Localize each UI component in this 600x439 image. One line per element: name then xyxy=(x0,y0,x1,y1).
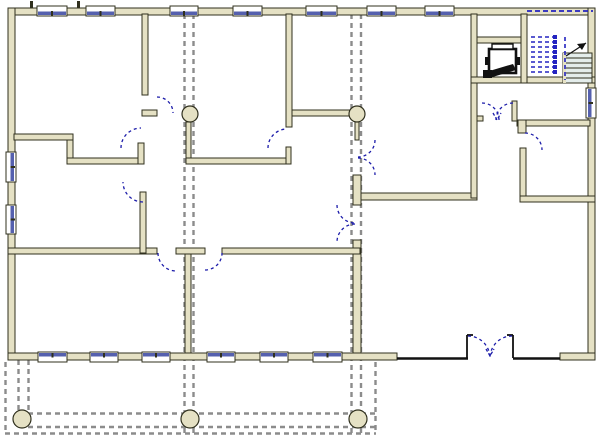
wall xyxy=(353,240,361,353)
window-mullion xyxy=(183,11,185,16)
wall xyxy=(186,158,291,164)
wall xyxy=(520,196,595,202)
wall xyxy=(138,143,144,164)
wall xyxy=(560,353,595,360)
wall xyxy=(477,116,483,121)
wall xyxy=(286,14,292,127)
elevator-guide-bracket xyxy=(516,57,520,65)
wall xyxy=(292,110,350,116)
wall xyxy=(520,148,526,202)
window-mullion xyxy=(103,353,105,358)
stair-up-marker xyxy=(553,50,557,54)
stair-up-marker xyxy=(553,45,557,49)
elevator-rail-bar xyxy=(492,44,513,49)
window-mullion xyxy=(273,353,275,358)
grid-tick xyxy=(30,1,33,8)
door-swing xyxy=(525,133,542,150)
wall xyxy=(521,14,527,83)
window-mullion xyxy=(589,102,594,104)
column xyxy=(182,106,198,122)
window-mullion xyxy=(100,11,102,16)
window-mullion xyxy=(11,166,16,168)
column xyxy=(349,410,367,428)
wall xyxy=(517,120,590,126)
door-swing xyxy=(205,253,222,270)
window-mullion xyxy=(155,353,157,358)
wall xyxy=(477,37,527,43)
stair-up-marker xyxy=(553,55,557,59)
door-swing xyxy=(157,97,173,113)
window-mullion xyxy=(321,11,323,16)
wall xyxy=(471,14,477,198)
door-swing xyxy=(268,129,287,148)
wall xyxy=(14,134,73,140)
door-swing xyxy=(482,103,499,120)
stair-up-marker xyxy=(553,40,557,44)
stair-up-marker xyxy=(553,65,557,69)
window-mullion xyxy=(52,353,54,358)
window-mullion xyxy=(247,11,249,16)
window-mullion xyxy=(51,11,53,16)
wall xyxy=(355,122,359,140)
stair-up-marker xyxy=(553,70,557,74)
wall xyxy=(8,8,15,360)
wall xyxy=(142,14,148,95)
wall xyxy=(186,122,191,160)
floor-plan xyxy=(0,0,600,439)
stair-up-marker xyxy=(553,60,557,64)
wall xyxy=(518,120,526,133)
stair-up-marker xyxy=(553,35,557,39)
wall xyxy=(222,248,360,254)
wall xyxy=(471,77,527,83)
stair-arrow-head xyxy=(577,43,586,50)
window-mullion xyxy=(220,353,222,358)
column xyxy=(13,410,31,428)
wall xyxy=(512,101,517,121)
floor-plan-svg xyxy=(0,0,600,439)
column xyxy=(181,410,199,428)
grid-tick xyxy=(77,1,80,8)
elevator-guide-bracket xyxy=(485,57,489,65)
wall xyxy=(140,192,146,253)
door-swing xyxy=(158,253,176,271)
wall xyxy=(353,175,361,205)
door-swing xyxy=(468,336,490,358)
wall xyxy=(176,248,205,254)
wall xyxy=(67,140,73,158)
wall xyxy=(142,110,157,116)
column xyxy=(349,106,365,122)
wall xyxy=(286,147,291,164)
door-swing xyxy=(490,336,512,358)
door-leaf-mark xyxy=(486,349,494,356)
window-mullion xyxy=(439,11,441,16)
elevator-piston-base xyxy=(483,70,492,78)
wall xyxy=(8,248,157,254)
wall xyxy=(185,254,191,353)
window-mullion xyxy=(327,353,329,358)
window-mullion xyxy=(11,219,16,221)
window-mullion xyxy=(381,11,383,16)
wall xyxy=(67,158,138,164)
wall xyxy=(361,193,477,200)
